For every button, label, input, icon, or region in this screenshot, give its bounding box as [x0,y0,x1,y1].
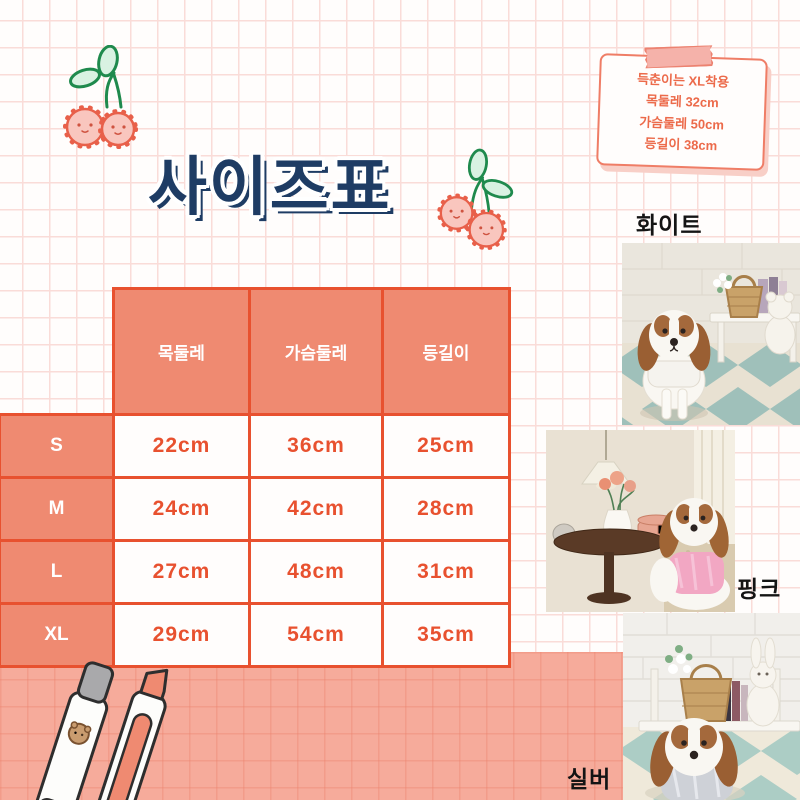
size-row-L: L27cm48cm31cm [0,541,510,604]
size-value: 35cm [383,604,510,667]
product-photo-pink [546,430,735,612]
size-label: L [0,541,114,604]
product-photo-white [622,243,800,425]
column-header-chest: 가슴둘레 [250,289,383,415]
size-label: S [0,415,114,478]
size-value: 54cm [250,604,383,667]
size-value: 42cm [250,478,383,541]
size-row-S: S22cm36cm25cm [0,415,510,478]
size-value: 36cm [250,415,383,478]
column-header-back: 등길이 [383,289,510,415]
size-value: 24cm [114,478,250,541]
dog-photo-white-illustration [622,243,800,425]
size-chart-page: { "page": { "title": "사이즈표", "background… [0,0,800,800]
cherry-icon [52,45,147,157]
size-value: 48cm [250,541,383,604]
size-label: M [0,478,114,541]
product-photo-silver [623,613,800,800]
dog-photo-silver-illustration [623,613,800,800]
size-value: 25cm [383,415,510,478]
tape-icon [644,44,713,70]
table-header-row: 목둘레 가슴둘레 등길이 [0,289,510,415]
size-row-M: M24cm42cm28cm [0,478,510,541]
cherry-icon [425,148,517,252]
size-value: 28cm [383,478,510,541]
column-header-neck: 목둘레 [114,289,250,415]
size-value: 22cm [114,415,250,478]
fit-note: 득춘이는 XL착용 목둘레 32cm 가슴둘레 50cm 등길이 38cm [596,53,768,171]
note-line: 등길이 38cm [605,132,758,159]
size-value: 27cm [114,541,250,604]
empty-corner-cell [0,289,114,415]
photo-label-white: 화이트 [636,206,702,240]
size-value: 31cm [383,541,510,604]
photo-label-silver: 실버 [567,760,611,794]
photo-label-pink: 핑크 [737,570,781,604]
size-table: 목둘레 가슴둘레 등길이 S22cm36cm25cmM24cm42cm28cmL… [0,287,511,668]
pens-icon [0,645,190,800]
page-title: 사이즈표 [148,136,448,228]
dog-photo-pink-illustration [546,430,735,612]
